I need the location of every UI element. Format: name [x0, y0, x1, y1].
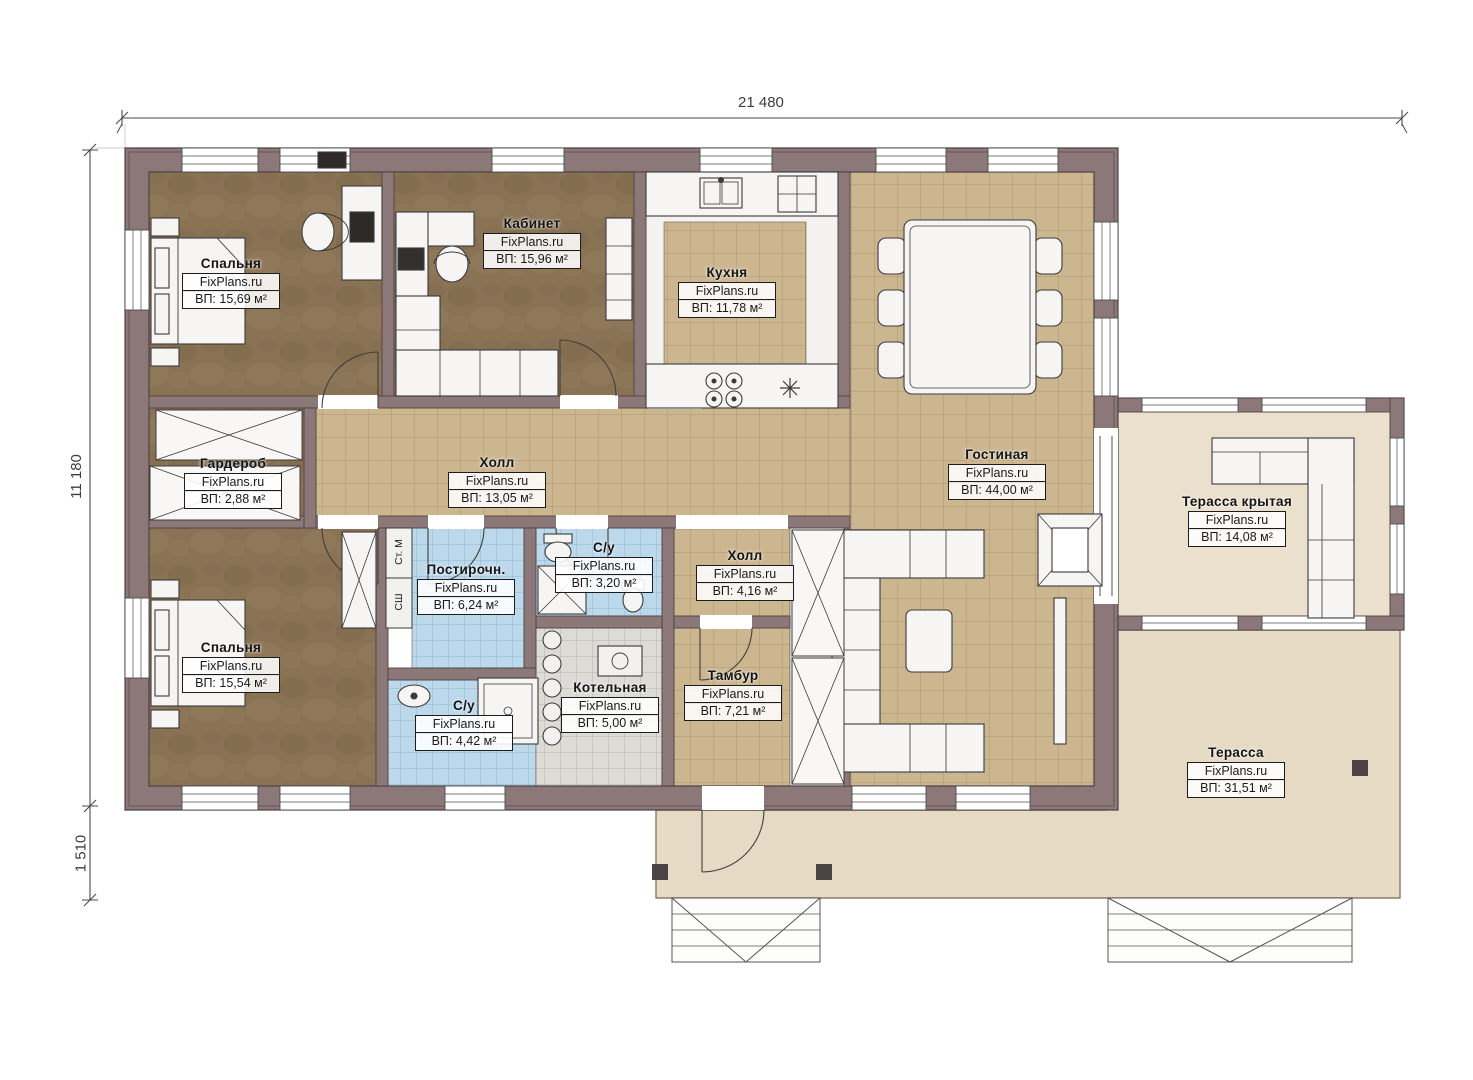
room-area: ВП: 4,16 м² [696, 582, 794, 601]
room-area: ВП: 44,00 м² [948, 481, 1046, 500]
room-label-terrace: Терасса FixPlans.ru ВП: 31,51 м² [1187, 745, 1285, 798]
room-name: Терасса крытая [1182, 494, 1292, 509]
watermark: FixPlans.ru [448, 472, 546, 491]
floor-hall-main [316, 408, 850, 528]
watermark: FixPlans.ru [678, 282, 776, 301]
floor-plan-page: 21 480 11 180 1 510 Спальня FixPlans.ru … [0, 0, 1473, 1080]
watermark: FixPlans.ru [184, 473, 282, 492]
fireplace-icon [1038, 514, 1102, 586]
room-area: ВП: 15,69 м² [182, 290, 280, 309]
room-name: Холл [727, 548, 762, 563]
room-label-wc-bottom: С/у FixPlans.ru ВП: 4,42 м² [415, 698, 513, 751]
room-area: ВП: 4,42 м² [415, 732, 513, 751]
room-area: ВП: 15,54 м² [182, 674, 280, 693]
washer-label: Ст. М [393, 529, 405, 575]
room-label-boiler: Котельная FixPlans.ru ВП: 5,00 м² [561, 680, 659, 733]
room-area: ВП: 6,24 м² [417, 596, 515, 615]
room-name: Гостиная [965, 447, 1028, 462]
dining-set [878, 220, 1062, 394]
room-area: ВП: 14,08 м² [1188, 528, 1286, 547]
room-area: ВП: 3,20 м² [555, 574, 653, 593]
room-label-bedroom-2: Спальня FixPlans.ru ВП: 15,54 м² [182, 640, 280, 693]
room-label-covered-terrace: Терасса крытая FixPlans.ru ВП: 14,08 м² [1182, 494, 1292, 547]
tv-console [1054, 598, 1066, 744]
room-area: ВП: 15,96 м² [483, 250, 581, 269]
room-area: ВП: 2,88 м² [184, 490, 282, 509]
room-name: Спальня [201, 256, 261, 271]
dryer-label: СШ [393, 579, 405, 625]
room-label-hall-main: Холл FixPlans.ru ВП: 13,05 м² [448, 455, 546, 508]
room-label-living: Гостиная FixPlans.ru ВП: 44,00 м² [948, 447, 1046, 500]
terrace-post [1352, 760, 1368, 776]
entrance-steps [672, 898, 1352, 962]
watermark: FixPlans.ru [948, 464, 1046, 483]
watermark: FixPlans.ru [417, 579, 515, 598]
room-name: Постирочн. [426, 562, 505, 577]
room-name: Гардероб [200, 456, 266, 471]
room-label-office: Кабинет FixPlans.ru ВП: 15,96 м² [483, 216, 581, 269]
room-label-wardrobe: Гардероб FixPlans.ru ВП: 2,88 м² [184, 456, 282, 509]
room-name: Кабинет [504, 216, 561, 231]
room-name: Спальня [201, 640, 261, 655]
room-label-hall-small: Холл FixPlans.ru ВП: 4,16 м² [696, 548, 794, 601]
fridge-snowflake-icon [780, 378, 800, 398]
room-label-vestibule: Тамбур FixPlans.ru ВП: 7,21 м² [684, 668, 782, 721]
room-name: Кухня [707, 265, 748, 280]
watermark: FixPlans.ru [561, 697, 659, 716]
room-label-laundry: Постирочн. FixPlans.ru ВП: 6,24 м² [417, 562, 515, 615]
room-area: ВП: 5,00 м² [561, 714, 659, 733]
watermark: FixPlans.ru [182, 273, 280, 292]
watermark: FixPlans.ru [415, 715, 513, 734]
terrace-post [652, 864, 668, 880]
watermark: FixPlans.ru [483, 233, 581, 252]
watermark: FixPlans.ru [182, 657, 280, 676]
dimension-width-top: 21 480 [738, 94, 784, 111]
room-area: ВП: 13,05 м² [448, 489, 546, 508]
dimension-height-left: 11 180 [68, 454, 85, 499]
room-label-bedroom-1: Спальня FixPlans.ru ВП: 15,69 м² [182, 256, 280, 309]
room-name: Тамбур [708, 668, 759, 683]
room-name: С/у [593, 540, 615, 555]
room-area: ВП: 11,78 м² [678, 299, 776, 318]
watermark: FixPlans.ru [555, 557, 653, 576]
room-label-kitchen: Кухня FixPlans.ru ВП: 11,78 м² [678, 265, 776, 318]
room-name: Котельная [573, 680, 646, 695]
room-name: Холл [479, 455, 514, 470]
dimension-terrace-left: 1 510 [72, 835, 89, 873]
room-name: Терасса [1208, 745, 1264, 760]
room-label-wc-top: С/у FixPlans.ru ВП: 3,20 м² [555, 540, 653, 593]
watermark: FixPlans.ru [684, 685, 782, 704]
room-area: ВП: 7,21 м² [684, 702, 782, 721]
watermark: FixPlans.ru [696, 565, 794, 584]
room-name: С/у [453, 698, 475, 713]
watermark: FixPlans.ru [1188, 511, 1286, 530]
watermark: FixPlans.ru [1187, 762, 1285, 781]
room-area: ВП: 31,51 м² [1187, 779, 1285, 798]
terrace-post [816, 864, 832, 880]
